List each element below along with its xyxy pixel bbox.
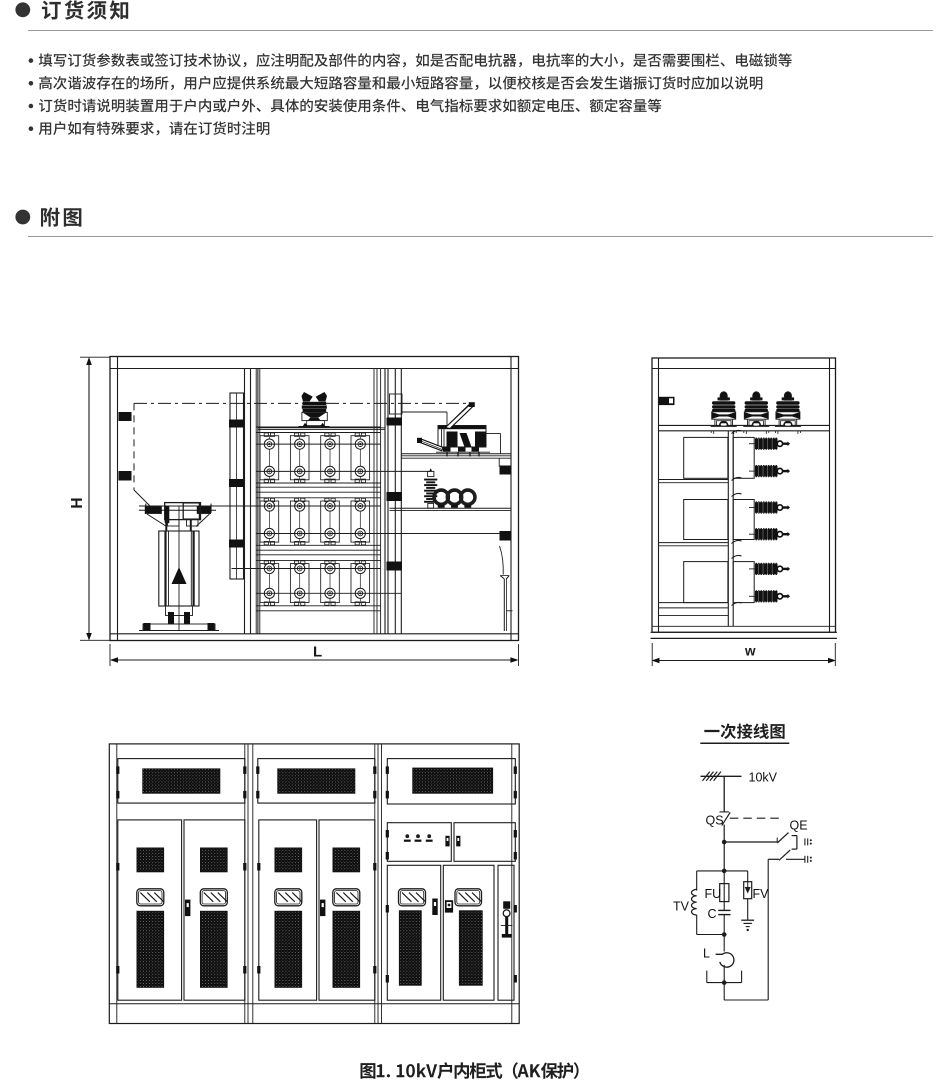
svg-text:C: C [708,907,717,921]
svg-text:FU: FU [705,887,722,901]
svg-text:w: w [744,643,756,658]
svg-text:10kV: 10kV [749,770,778,784]
svg-text:FV: FV [753,887,770,901]
svg-text:L: L [313,644,322,661]
svg-text:TV: TV [673,900,690,914]
svg-text:QE: QE [790,819,808,833]
svg-text:H: H [69,497,86,508]
svg-text:QS: QS [706,814,724,828]
svg-text:L: L [703,947,710,961]
